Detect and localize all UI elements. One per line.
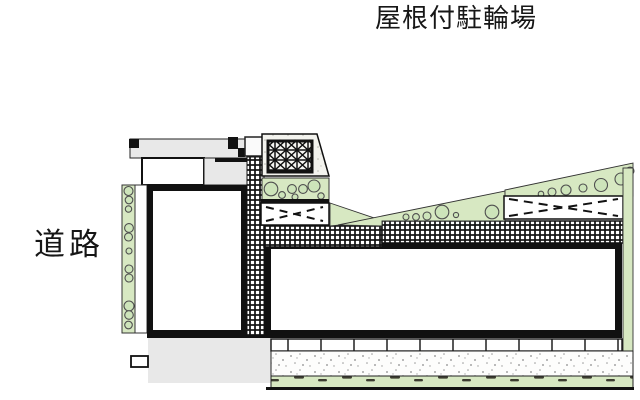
south-lawn-band (271, 376, 633, 388)
walkway-hatch-right (382, 221, 623, 243)
column-marker (238, 148, 245, 157)
walkway-hatch-vertical (247, 157, 264, 335)
trellis-roof (262, 134, 329, 176)
trellis-grid (268, 141, 312, 172)
south-gravel-band (271, 351, 633, 376)
covered-bicycle-parking-2 (504, 196, 623, 219)
bicycle-parking-label: 屋根付駐輪場 (375, 3, 537, 33)
column-marker (228, 137, 238, 149)
left-building-interior (153, 191, 241, 330)
site-plan-page: 屋根付駐輪場 道路 (0, 0, 640, 400)
service-area (204, 158, 248, 185)
main-building-interior (271, 249, 615, 330)
south-boundary-line (266, 387, 634, 390)
column-marker (129, 139, 139, 148)
road-label: 道路 (34, 227, 104, 262)
west-planting-strip (120, 185, 135, 333)
walkway-hatch-left (264, 226, 382, 247)
gate-box (131, 356, 148, 367)
planting-bed-north (262, 178, 329, 202)
roof-box (245, 137, 264, 156)
entrance-hall-room (142, 158, 204, 185)
covered-bicycle-parking-1 (261, 199, 329, 225)
west-wall-strip (135, 185, 147, 333)
south-fence-band (271, 339, 622, 351)
site-plan-drawing: 屋根付駐輪場 道路 (0, 0, 640, 400)
